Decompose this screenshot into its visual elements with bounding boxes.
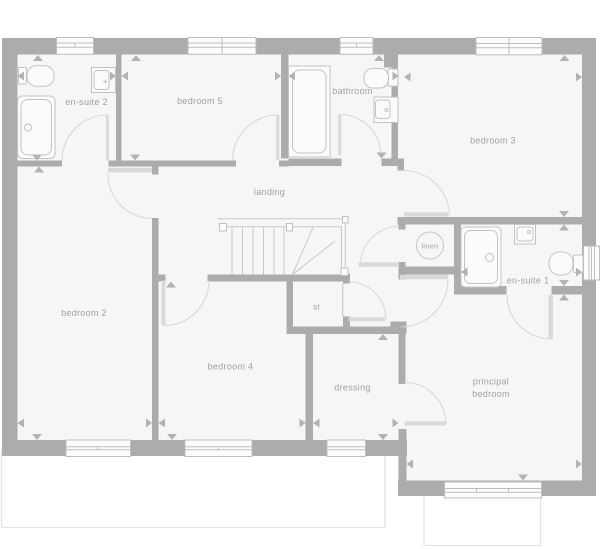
svg-text:bedroom 4: bedroom 4: [208, 362, 254, 372]
svg-text:linen: linen: [421, 242, 438, 251]
svg-text:st: st: [313, 303, 320, 312]
svg-text:landing: landing: [254, 187, 285, 197]
svg-text:bathroom: bathroom: [332, 86, 372, 96]
svg-text:en-suite 2: en-suite 2: [65, 97, 108, 107]
svg-text:en-suite 1: en-suite 1: [507, 276, 550, 286]
svg-text:bedroom 5: bedroom 5: [177, 96, 223, 106]
svg-text:principal: principal: [473, 377, 509, 387]
svg-text:dressing: dressing: [334, 383, 370, 393]
svg-text:bedroom 3: bedroom 3: [470, 136, 516, 146]
svg-text:bedroom 2: bedroom 2: [61, 308, 107, 318]
svg-text:bedroom: bedroom: [472, 389, 510, 399]
